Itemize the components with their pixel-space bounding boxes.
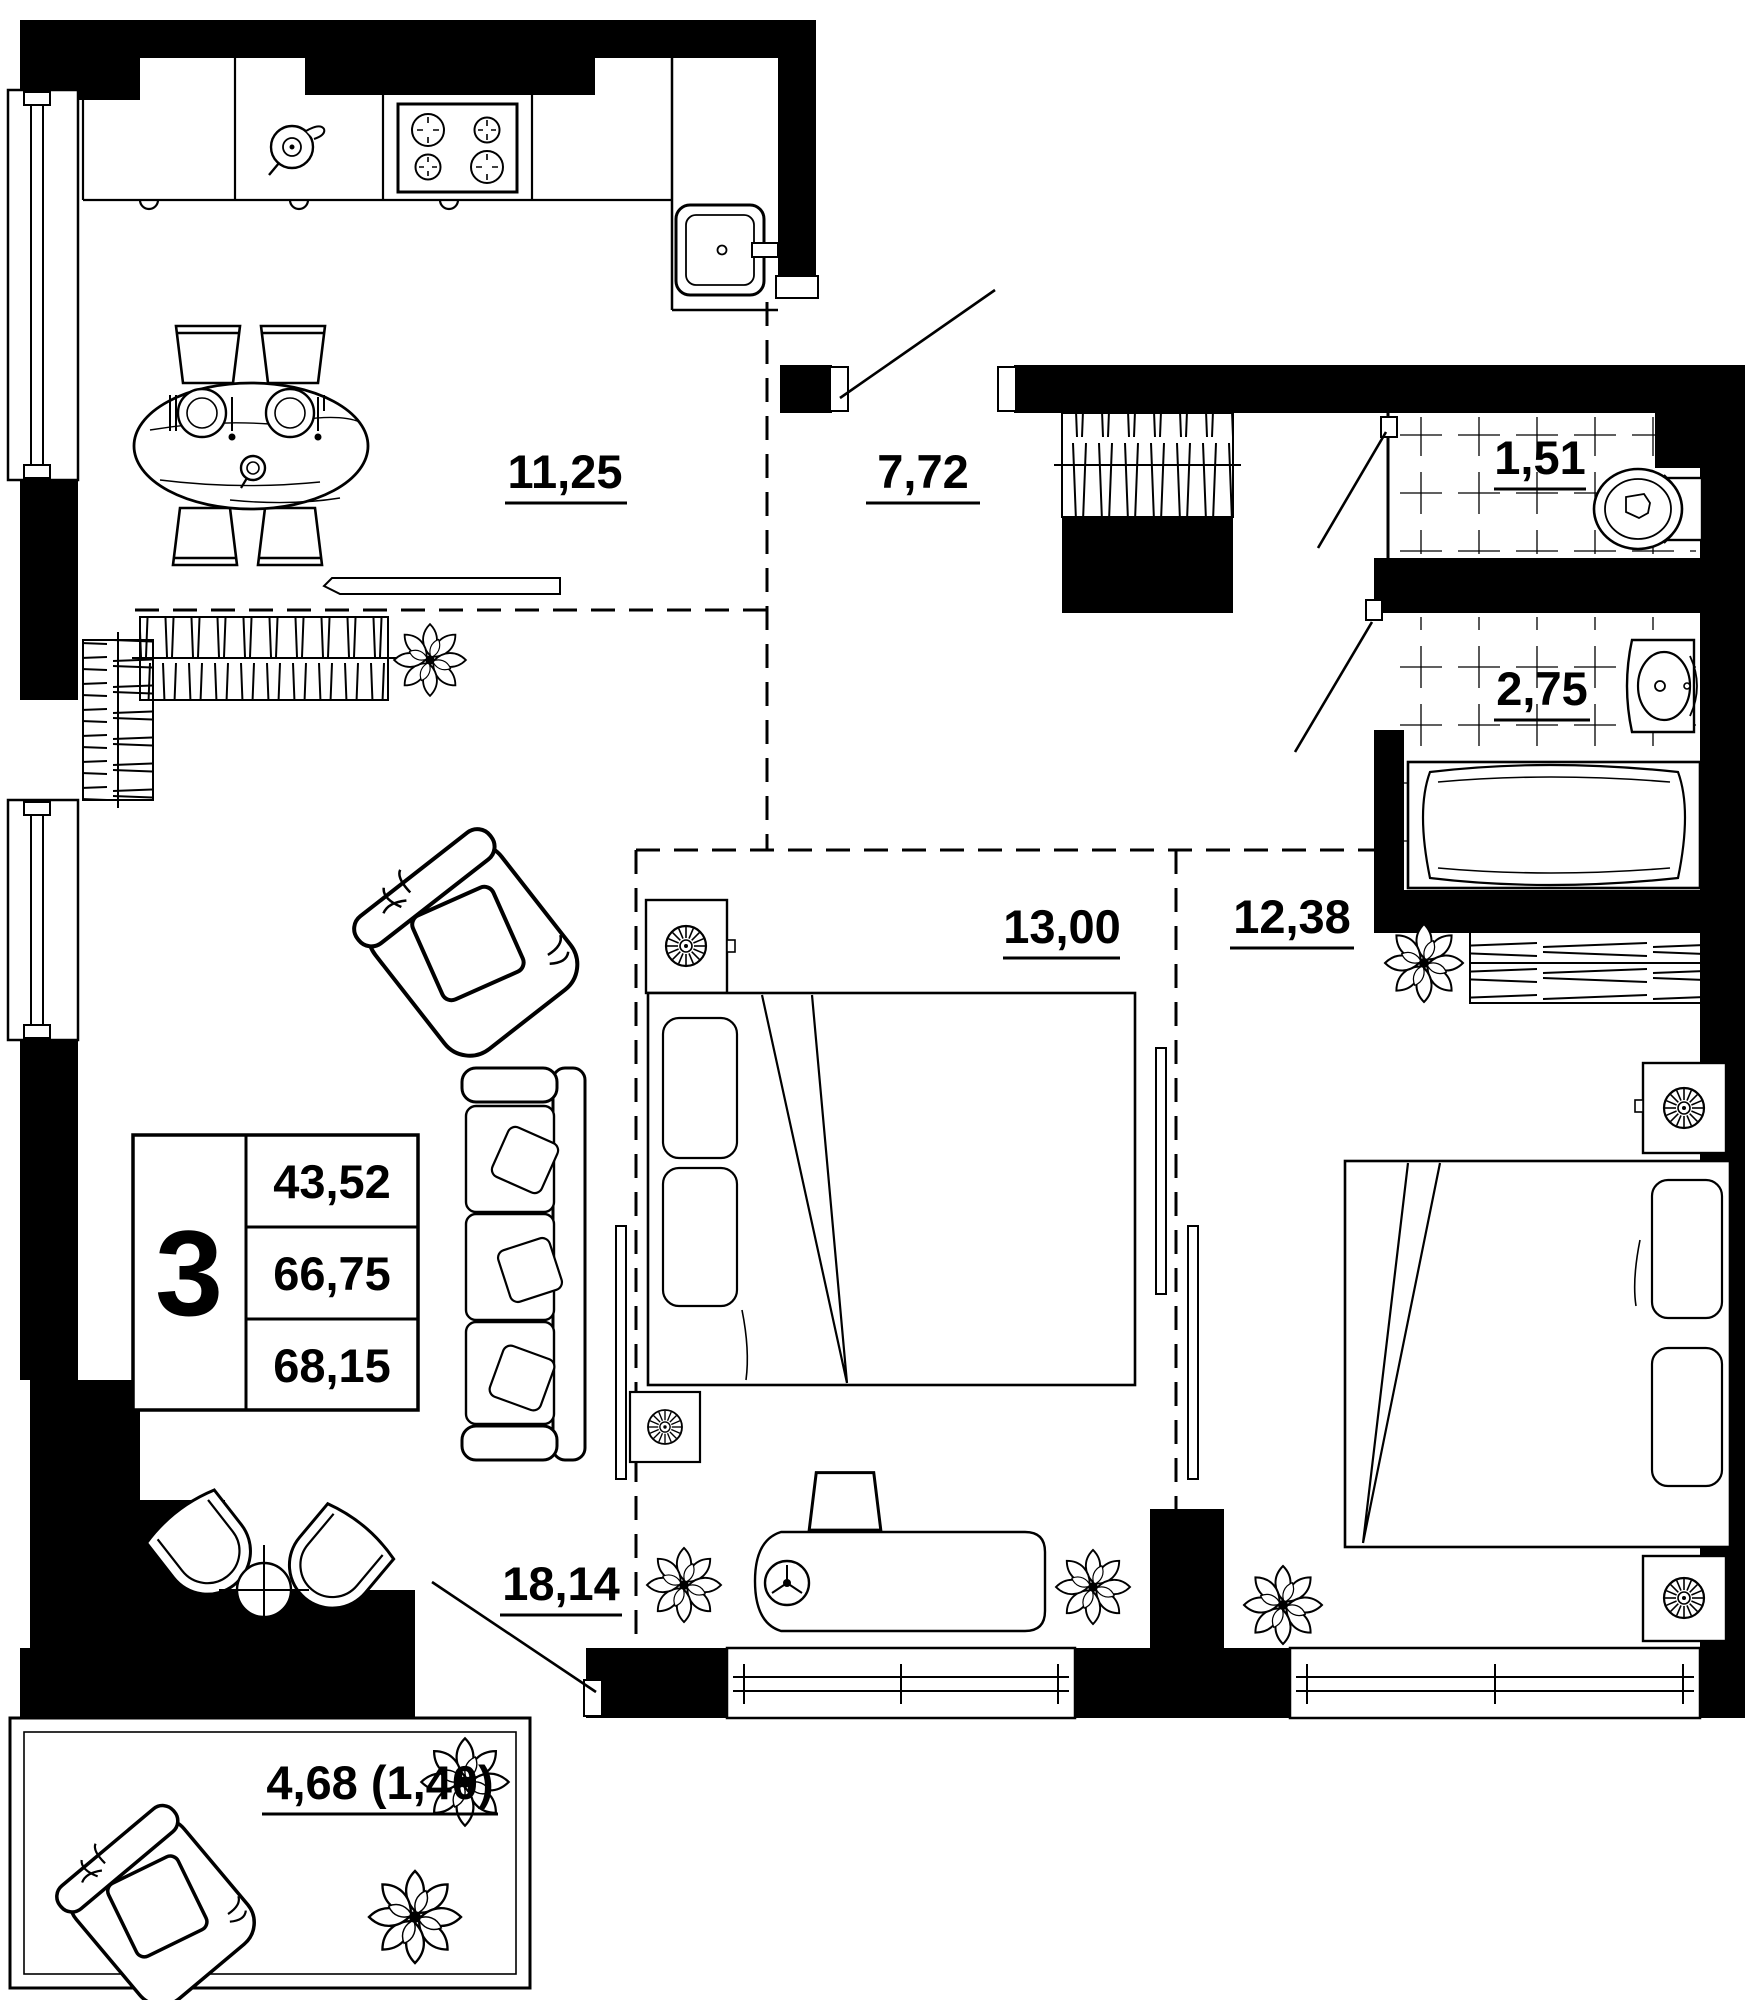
kitchen-door-jamb — [776, 276, 818, 298]
wall-radiator — [83, 632, 153, 808]
sofa — [462, 1068, 585, 1460]
bed-double — [648, 993, 1135, 1385]
bedroom2-wardrobe — [1470, 923, 1721, 1003]
kitchen-area-label: 11,25 — [507, 445, 622, 498]
rooms-count: 3 — [155, 1205, 223, 1341]
room-hallway — [1054, 413, 1241, 517]
plant-icon — [394, 624, 466, 696]
lamp-icon — [1664, 1088, 1704, 1128]
lamp-icon — [648, 1410, 682, 1444]
bedroom2-window — [1290, 1648, 1700, 1718]
stove — [398, 104, 517, 192]
living-wardrobe — [132, 617, 396, 700]
dining-chair — [258, 508, 322, 565]
toilet-area-label: 1,51 — [1494, 431, 1585, 484]
nightstand — [630, 1392, 700, 1462]
desk-chair — [808, 1473, 882, 1539]
bedroom1-window — [727, 1648, 1075, 1718]
bed-double — [1345, 1161, 1730, 1547]
entry-jamb-right — [998, 367, 1016, 411]
unit-summary-table: 3 43,52 66,75 68,15 — [133, 1135, 418, 1410]
living-area-value: 43,52 — [273, 1155, 391, 1208]
bathroom-area-label: 2,75 — [1496, 662, 1587, 715]
lamp-icon — [666, 926, 706, 966]
area-value: 66,75 — [273, 1247, 391, 1300]
dining-chair — [261, 326, 325, 383]
dining-chair — [176, 326, 240, 383]
bedroom2-area-label: 12,38 — [1233, 890, 1351, 943]
room-toilet — [1594, 469, 1702, 549]
plant-icon — [647, 1548, 721, 1622]
plant-icon — [369, 1871, 461, 1963]
hallway-area-label: 7,72 — [877, 445, 968, 498]
living-window — [8, 800, 78, 1040]
nightstand — [1643, 1556, 1726, 1641]
washbasin — [1627, 640, 1697, 732]
kitchen-shelf — [324, 578, 560, 594]
total-area-value: 68,15 — [273, 1339, 391, 1392]
entry-jamb-left — [830, 367, 848, 411]
bedroom1-area-label: 13,00 — [1003, 900, 1121, 953]
nightstand — [646, 900, 735, 993]
nightstand — [1635, 1063, 1726, 1153]
plant-icon — [1244, 1566, 1322, 1644]
bathroom-door-jamb — [1366, 600, 1382, 620]
plant-icon — [1385, 924, 1463, 1002]
floor-plan: 3 43,52 66,75 68,15 11,25 7,72 1,51 2,75… — [0, 0, 1762, 2000]
hall-wardrobe — [1054, 413, 1241, 517]
bathtub — [1408, 762, 1700, 888]
dining-chair — [173, 508, 237, 565]
toilet — [1594, 469, 1702, 549]
plant-icon — [1056, 1550, 1130, 1624]
living-area-label: 18,14 — [502, 1557, 620, 1610]
balcony-area-label: 4,68 (1,40) — [266, 1756, 493, 1809]
kitchen-sink — [676, 205, 778, 295]
floor-plan-page: 3 43,52 66,75 68,15 11,25 7,72 1,51 2,75… — [0, 0, 1762, 2000]
lamp-icon — [1664, 1578, 1704, 1618]
kitchen-window — [8, 90, 78, 480]
